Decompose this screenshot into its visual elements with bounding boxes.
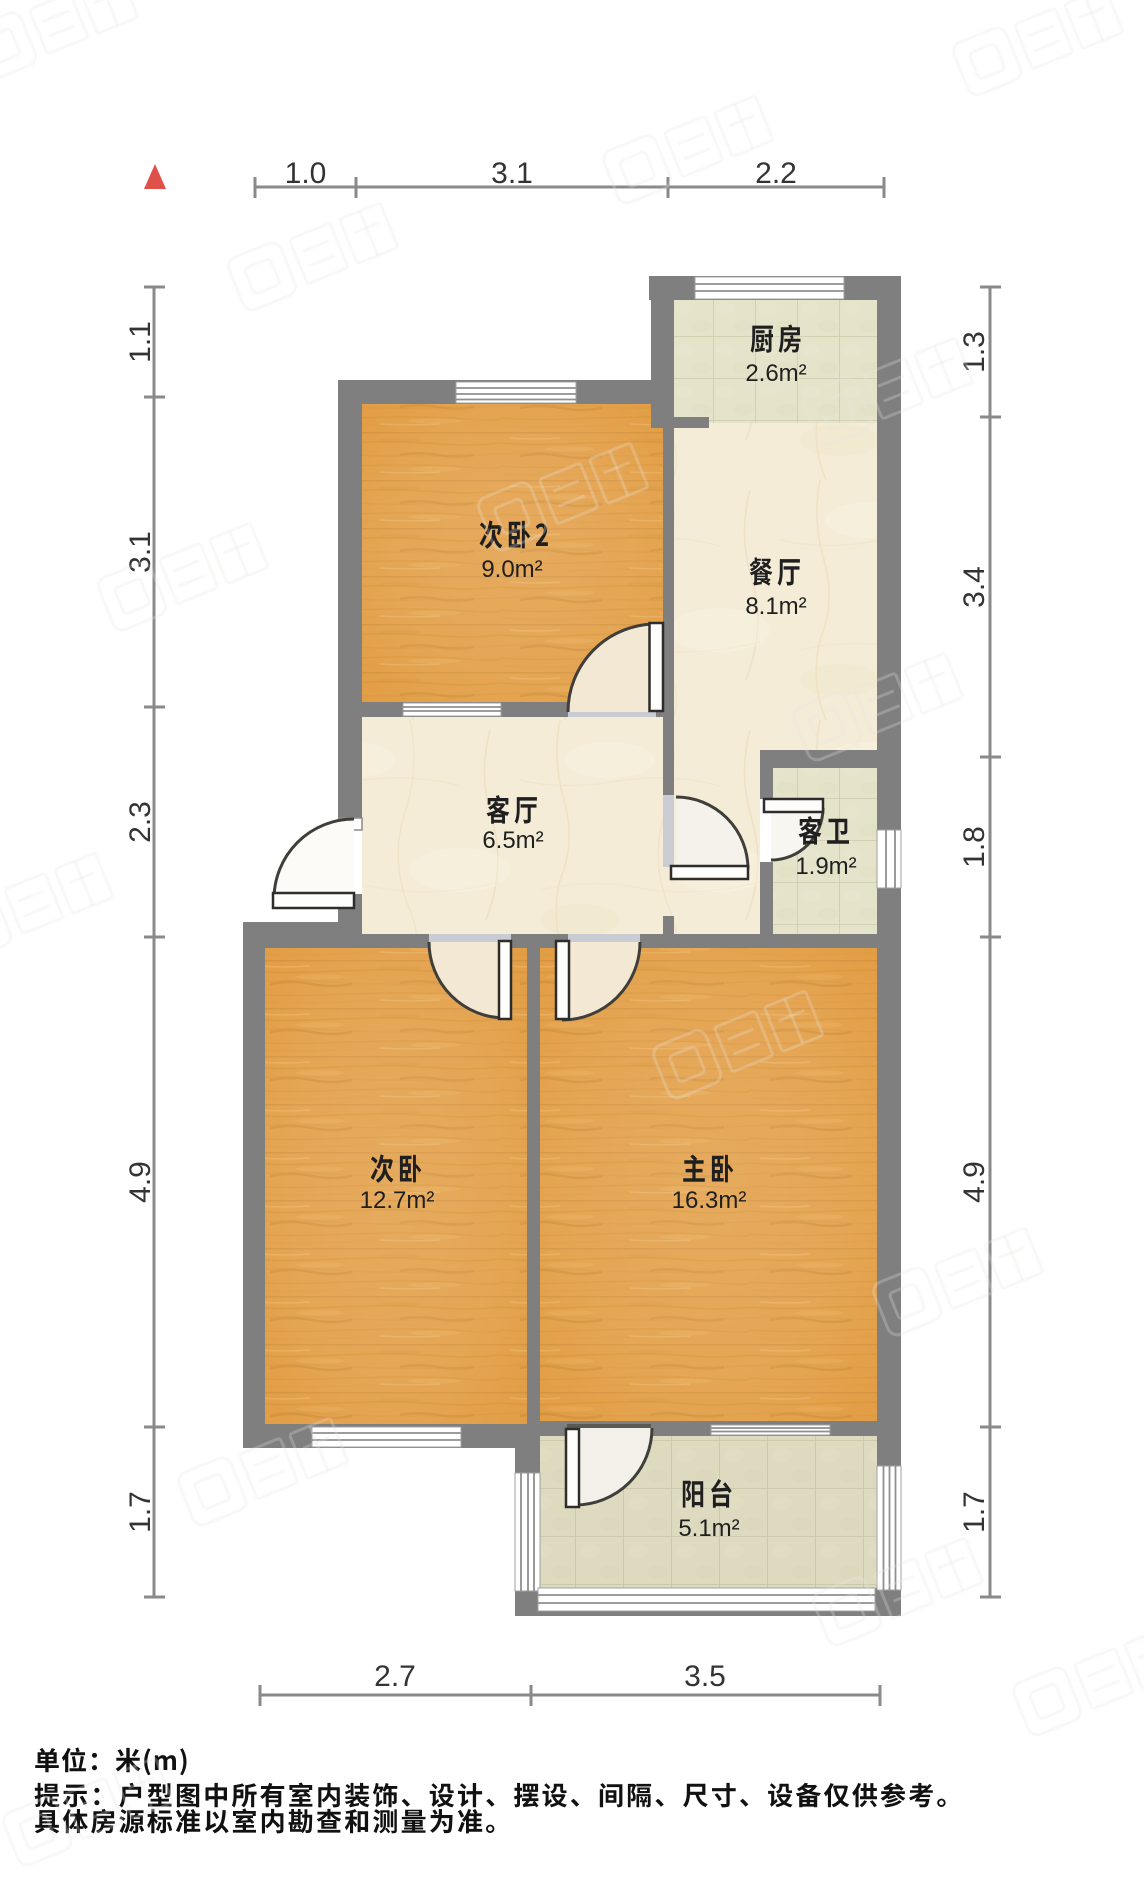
svg-text:9.0m²: 9.0m²: [481, 556, 542, 583]
svg-text:1.7: 1.7: [958, 1491, 991, 1533]
svg-text:2.6m²: 2.6m²: [745, 360, 806, 387]
svg-text:8.1m²: 8.1m²: [745, 593, 806, 620]
svg-text:1.0: 1.0: [285, 157, 327, 190]
svg-text:2.2: 2.2: [755, 157, 797, 190]
svg-text:3.5: 3.5: [684, 1660, 726, 1693]
svg-text:1.1: 1.1: [124, 321, 157, 363]
svg-text:6.5m²: 6.5m²: [482, 827, 543, 854]
svg-text:1.8: 1.8: [958, 826, 991, 868]
svg-text:2.3: 2.3: [124, 801, 157, 843]
svg-text:1.7: 1.7: [124, 1491, 157, 1533]
svg-text:5.1m²: 5.1m²: [678, 1515, 739, 1542]
svg-text:16.3m²: 16.3m²: [672, 1187, 747, 1214]
svg-text:2.7: 2.7: [374, 1660, 416, 1693]
svg-text:12.7m²: 12.7m²: [360, 1187, 435, 1214]
svg-text:3.1: 3.1: [491, 157, 533, 190]
svg-text:4.9: 4.9: [958, 1161, 991, 1203]
svg-text:3.4: 3.4: [958, 566, 991, 608]
svg-text:4.9: 4.9: [124, 1161, 157, 1203]
svg-text:1.3: 1.3: [958, 331, 991, 373]
svg-text:1.9m²: 1.9m²: [795, 853, 856, 880]
